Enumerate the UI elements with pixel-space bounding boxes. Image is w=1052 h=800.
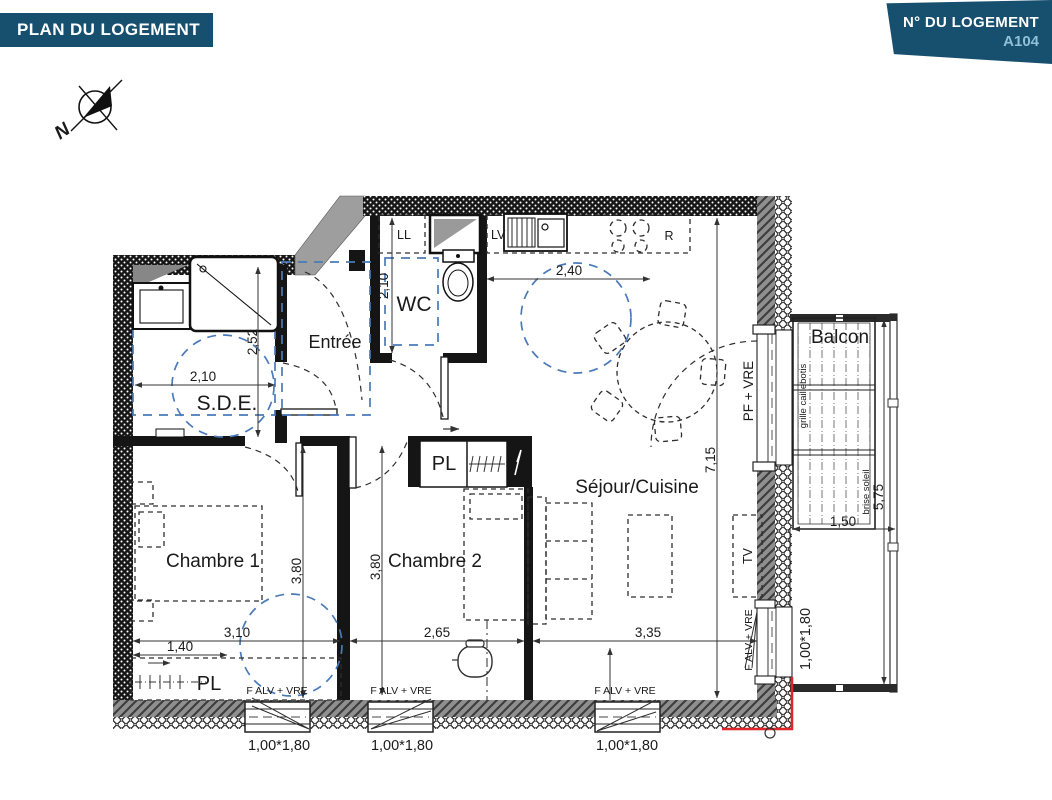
coffee-table-icon bbox=[628, 515, 672, 597]
window4-type-label: F ALV + VRE bbox=[743, 609, 755, 670]
fixture-label-r: R bbox=[664, 229, 673, 243]
window-3 bbox=[595, 700, 660, 732]
window-2 bbox=[368, 699, 433, 732]
room-label-sde: S.D.E. bbox=[197, 392, 258, 415]
opening-label-pf-vre: PF + VRE bbox=[741, 361, 756, 421]
placard1 bbox=[131, 658, 341, 700]
window2-size-label: 1,00*1,80 bbox=[371, 738, 433, 754]
fixture-label-tv: TV bbox=[741, 547, 755, 564]
sink-icon bbox=[504, 214, 567, 251]
sofa-icon bbox=[528, 497, 592, 624]
toilet-icon bbox=[443, 250, 474, 301]
sejour-furniture bbox=[528, 497, 762, 624]
dim-sde-width: 2,10 bbox=[190, 369, 216, 384]
dim-sejour-width: 3,35 bbox=[635, 625, 661, 640]
window1-size-label: 1,00*1,80 bbox=[248, 738, 310, 754]
dim-chambre2-depth: 3,80 bbox=[368, 554, 383, 580]
dim-balcon-length: 5,75 bbox=[871, 484, 886, 510]
room-label-chambre1: Chambre 1 bbox=[166, 551, 260, 572]
window3-size-label: 1,00*1,80 bbox=[596, 738, 658, 754]
opening-label-brise: brise soleil bbox=[861, 470, 872, 515]
floor-plan-svg: N bbox=[0, 0, 1052, 800]
dim-wc-depth: 2,10 bbox=[376, 273, 391, 299]
dining-table-icon bbox=[589, 300, 726, 442]
wc-fixtures bbox=[379, 215, 480, 301]
dim-chambre1-width: 3,10 bbox=[224, 625, 250, 640]
dim-sejour-depth: 7,15 bbox=[703, 447, 718, 473]
desk-chair-icon bbox=[452, 640, 492, 677]
compass-icon: N bbox=[51, 80, 122, 144]
dim-balcon-depth: 1,50 bbox=[830, 514, 856, 529]
cooktop-icon bbox=[610, 220, 649, 252]
opening-label-grille: grille caillebotis bbox=[798, 364, 809, 429]
window1-type-label: F ALV + VRE bbox=[246, 685, 307, 697]
floor-plan-page: PLAN DU LOGEMENT N° DU LOGEMENT A104 bbox=[0, 0, 1052, 800]
room-label-sejour: Séjour/Cuisine bbox=[575, 477, 699, 498]
window-1 bbox=[245, 698, 310, 732]
dim-sde-depth: 2,52 bbox=[245, 329, 260, 355]
dim-chambre2-width: 2,65 bbox=[424, 625, 450, 640]
window4-size-label: 1,00*1,80 bbox=[798, 608, 814, 670]
room-label-wc: WC bbox=[397, 293, 432, 316]
fixture-label-ll: LL bbox=[397, 228, 411, 242]
dim-cuisine-width: 2,40 bbox=[556, 263, 582, 278]
room-label-pl2: PL bbox=[432, 453, 456, 475]
room-label-entree: Entrée bbox=[308, 332, 361, 352]
window3-type-label: F ALV + VRE bbox=[594, 685, 655, 697]
dim-placard1-width: 1,40 bbox=[167, 639, 193, 654]
kitchen-fixtures bbox=[487, 214, 690, 253]
dim-chambre1-depth: 3,80 bbox=[289, 558, 304, 584]
fixture-label-lv: LV bbox=[491, 228, 506, 242]
room-label-pl1: PL bbox=[197, 673, 221, 695]
window2-type-label: F ALV + VRE bbox=[370, 685, 431, 697]
room-label-balcon: Balcon bbox=[811, 327, 869, 348]
room-label-chambre2: Chambre 2 bbox=[388, 551, 482, 572]
